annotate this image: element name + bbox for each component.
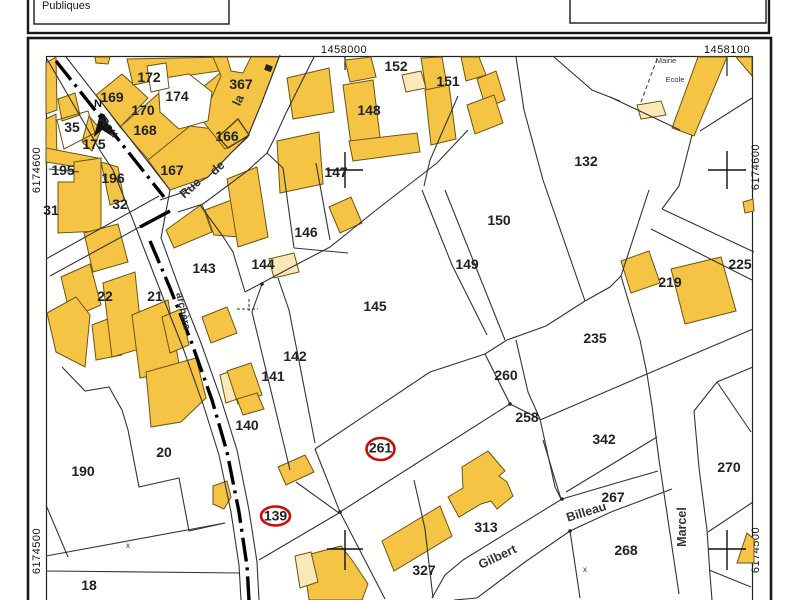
svg-text:132: 132 [574, 153, 598, 169]
svg-text:166: 166 [215, 128, 239, 144]
svg-text:140: 140 [235, 417, 259, 433]
svg-text:196: 196 [101, 170, 125, 186]
svg-text:367: 367 [229, 76, 253, 92]
svg-text:235: 235 [583, 330, 607, 346]
svg-text:x: x [583, 565, 587, 574]
svg-text:Marcel: Marcel [675, 507, 689, 547]
svg-text:22: 22 [97, 288, 113, 304]
svg-text:149: 149 [455, 256, 479, 272]
svg-text:268: 268 [614, 542, 638, 558]
svg-text:6174500: 6174500 [31, 528, 43, 574]
svg-text:175: 175 [82, 136, 106, 152]
svg-text:32: 32 [112, 196, 128, 212]
svg-text:147: 147 [324, 164, 348, 180]
svg-text:172: 172 [137, 69, 161, 85]
svg-text:225: 225 [728, 256, 752, 272]
svg-text:167: 167 [160, 162, 184, 178]
svg-text:141: 141 [261, 368, 285, 384]
svg-text:152: 152 [384, 58, 408, 74]
svg-text:143: 143 [192, 260, 216, 276]
svg-text:190: 190 [71, 463, 95, 479]
svg-text:260: 260 [494, 367, 518, 383]
svg-text:18: 18 [81, 577, 97, 593]
svg-text:139: 139 [264, 508, 288, 524]
svg-text:148: 148 [357, 102, 381, 118]
svg-text:x: x [126, 541, 130, 550]
svg-text:21: 21 [147, 288, 163, 304]
svg-text:6174600: 6174600 [31, 147, 43, 193]
svg-text:170: 170 [131, 102, 155, 118]
svg-text:146: 146 [294, 224, 318, 240]
svg-text:342: 342 [592, 431, 616, 447]
svg-text:Ecole: Ecole [666, 75, 685, 84]
svg-text:327: 327 [412, 562, 436, 578]
svg-text:31: 31 [43, 202, 59, 218]
svg-text:313: 313 [474, 519, 498, 535]
svg-text:151: 151 [436, 73, 460, 89]
svg-text:195: 195 [51, 162, 75, 178]
svg-text:1458000: 1458000 [321, 44, 367, 56]
svg-text:169: 169 [100, 89, 124, 105]
svg-text:219: 219 [658, 274, 682, 290]
svg-text:Publiques: Publiques [42, 0, 91, 12]
svg-text:144: 144 [251, 256, 275, 272]
svg-text:261: 261 [369, 440, 393, 456]
svg-text:1458100: 1458100 [704, 44, 750, 56]
svg-text:270: 270 [717, 459, 741, 475]
svg-text:142: 142 [283, 348, 307, 364]
svg-text:168: 168 [133, 122, 157, 138]
svg-text:145: 145 [363, 298, 387, 314]
svg-text:174: 174 [165, 88, 189, 104]
svg-text:Mairie: Mairie [656, 56, 676, 65]
svg-text:20: 20 [156, 444, 172, 460]
svg-text:35: 35 [64, 119, 80, 135]
svg-text:6174600: 6174600 [750, 144, 762, 190]
svg-text:150: 150 [487, 212, 511, 228]
svg-text:258: 258 [515, 409, 539, 425]
